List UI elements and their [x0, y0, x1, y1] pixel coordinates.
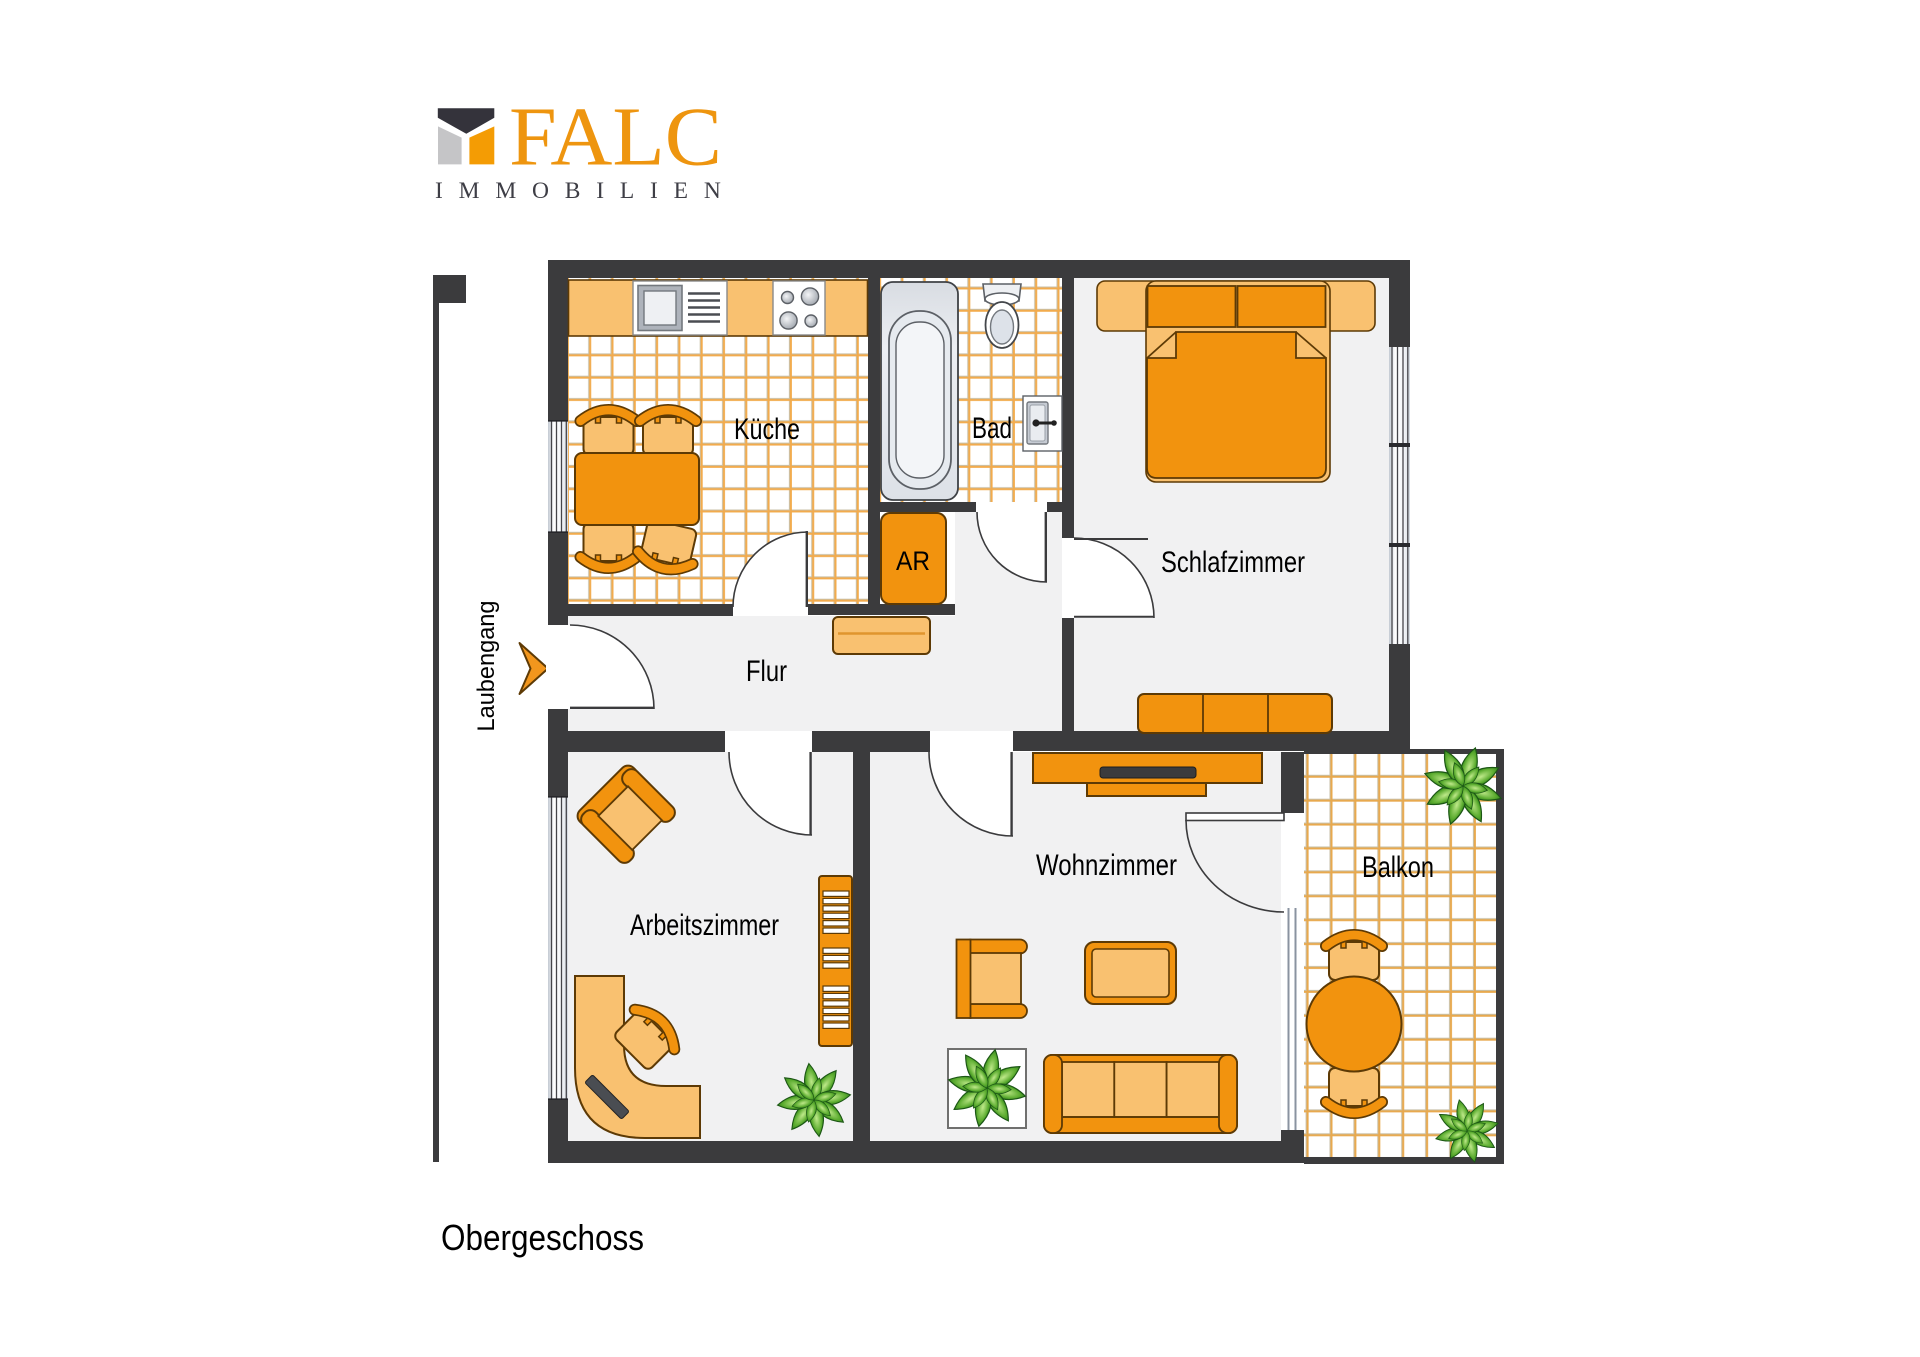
- svg-text:FALC: FALC: [509, 91, 722, 184]
- svg-text:IMMOBILIEN: IMMOBILIEN: [435, 178, 737, 204]
- svg-text:Schlafzimmer: Schlafzimmer: [1161, 546, 1305, 579]
- svg-text:Balkon: Balkon: [1362, 851, 1434, 884]
- svg-text:Obergeschoss: Obergeschoss: [441, 1217, 644, 1258]
- svg-text:Küche: Küche: [734, 413, 800, 446]
- svg-text:Laubengang: Laubengang: [473, 601, 500, 732]
- svg-text:Bad: Bad: [972, 412, 1012, 445]
- svg-text:Arbeitszimmer: Arbeitszimmer: [630, 909, 779, 942]
- svg-text:Wohnzimmer: Wohnzimmer: [1036, 849, 1177, 882]
- svg-text:AR: AR: [896, 546, 930, 576]
- svg-text:Flur: Flur: [746, 655, 787, 688]
